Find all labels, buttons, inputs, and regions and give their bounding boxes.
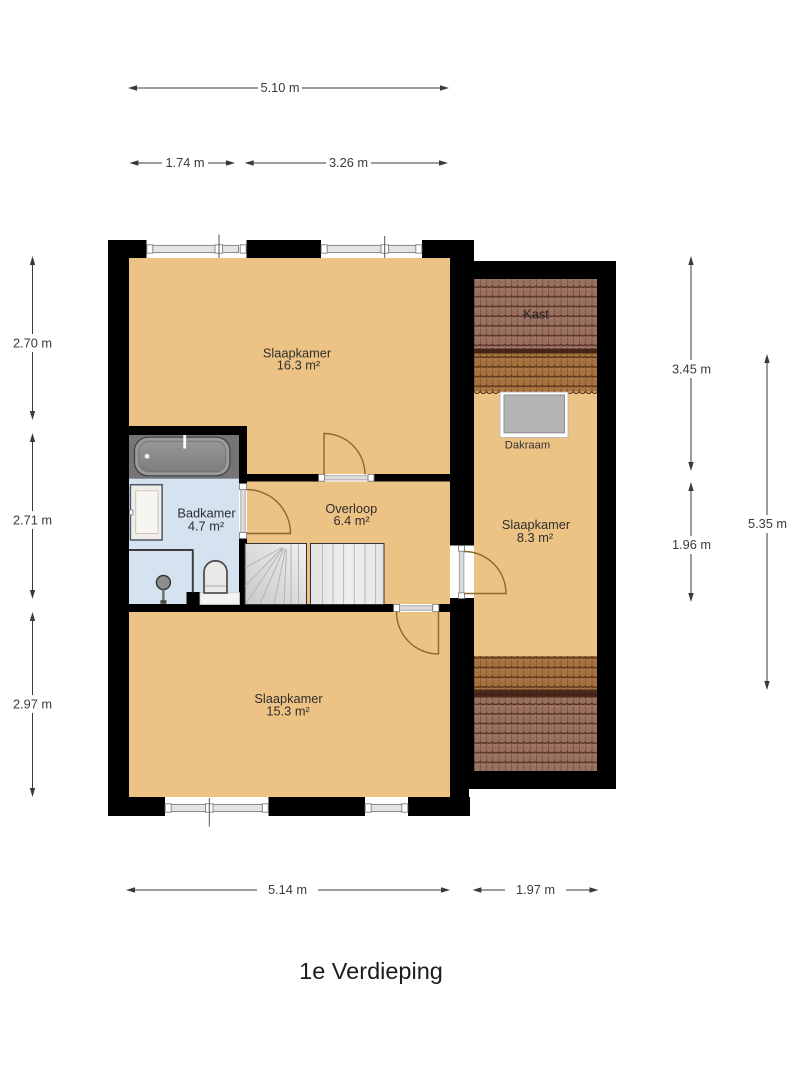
svg-text:15.3 m²: 15.3 m² bbox=[266, 704, 310, 719]
svg-text:2.97 m: 2.97 m bbox=[13, 697, 52, 712]
svg-text:1.74 m: 1.74 m bbox=[165, 155, 204, 170]
svg-text:5.35 m: 5.35 m bbox=[748, 516, 787, 531]
svg-text:3.26 m: 3.26 m bbox=[329, 155, 368, 170]
svg-text:5.10 m: 5.10 m bbox=[260, 80, 299, 95]
svg-text:2.71 m: 2.71 m bbox=[13, 513, 52, 528]
svg-text:Dakraam: Dakraam bbox=[505, 439, 550, 451]
svg-text:1e Verdieping: 1e Verdieping bbox=[299, 958, 443, 984]
svg-text:16.3 m²: 16.3 m² bbox=[277, 358, 321, 373]
svg-text:1.97 m: 1.97 m bbox=[516, 882, 555, 897]
svg-text:5.14 m: 5.14 m bbox=[268, 882, 307, 897]
svg-text:1.96 m: 1.96 m bbox=[672, 537, 711, 552]
svg-text:4.7 m²: 4.7 m² bbox=[188, 518, 225, 533]
svg-text:6.4 m²: 6.4 m² bbox=[333, 513, 370, 528]
svg-text:2.70 m: 2.70 m bbox=[13, 336, 52, 351]
svg-text:3.45 m: 3.45 m bbox=[672, 361, 711, 376]
svg-text:Kast: Kast bbox=[523, 307, 549, 322]
svg-text:8.3 m²: 8.3 m² bbox=[517, 530, 554, 545]
